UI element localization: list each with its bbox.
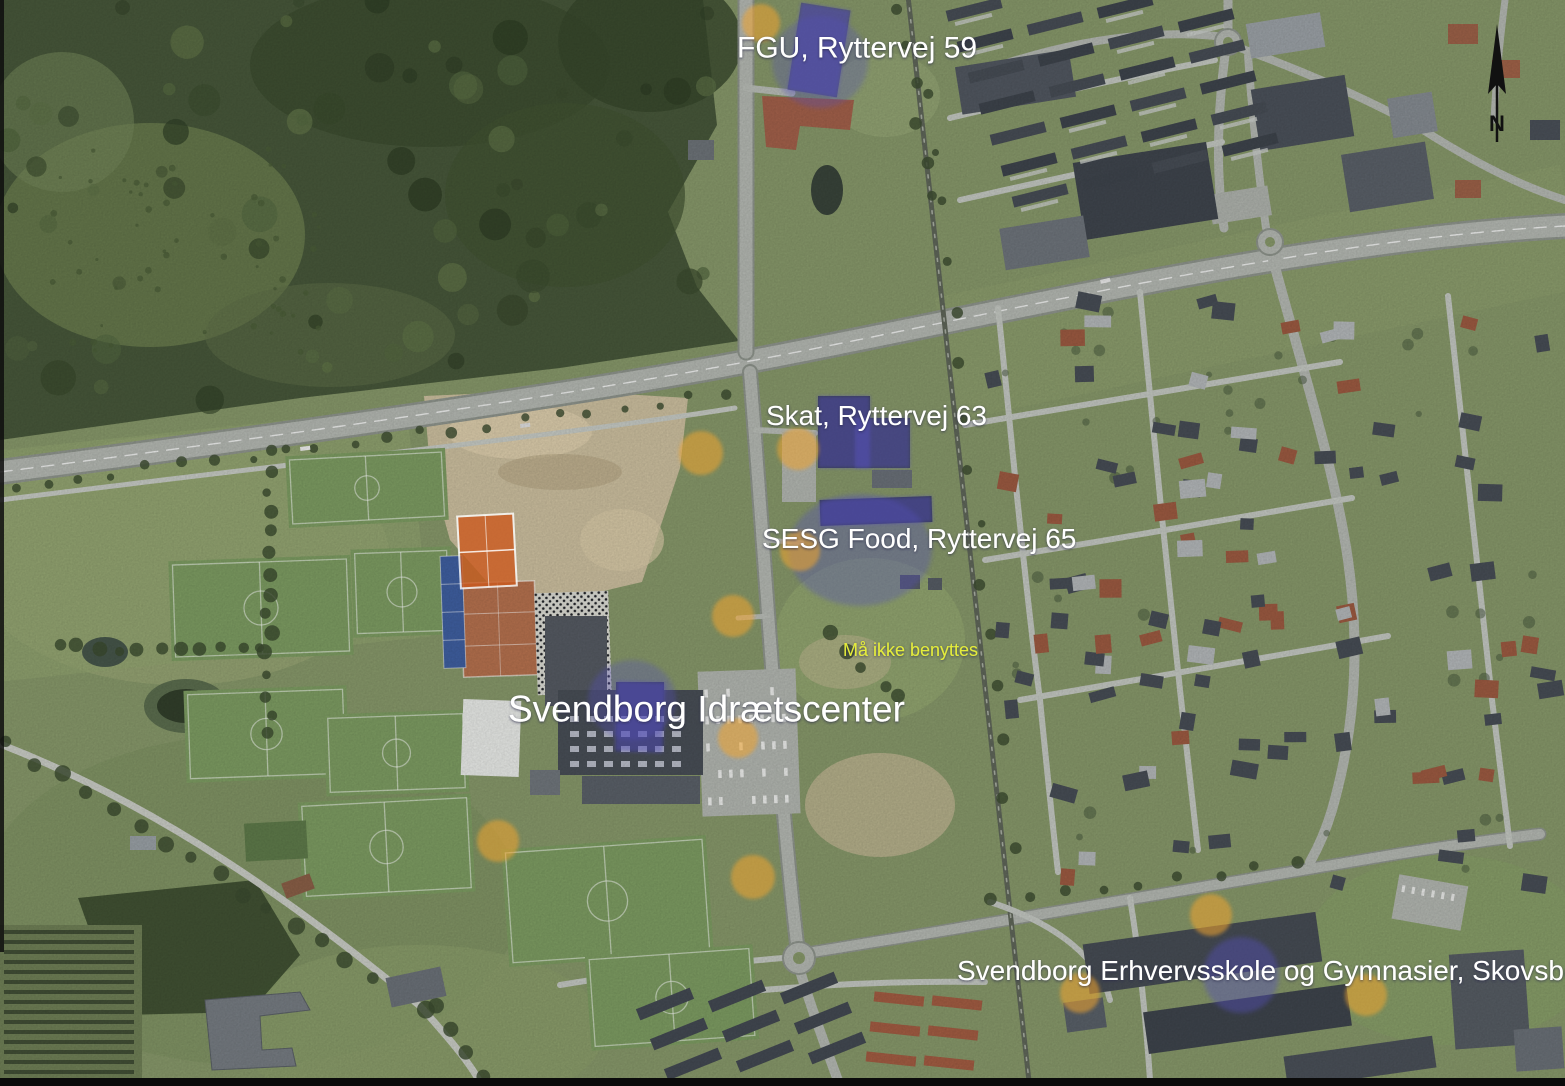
map-label-erhvervsskole: Svendborg Erhvervsskole og Gymnasier, Sk… — [957, 955, 1565, 986]
north-arrow-letter: N — [1489, 111, 1505, 136]
highlight-circle — [777, 428, 819, 470]
highlight-circle — [712, 595, 754, 637]
satellite-basemap: FGU, Ryttervej 59Skat, Ryttervej 63SESG … — [0, 0, 1565, 1086]
map-label-skat: Skat, Ryttervej 63 — [766, 400, 987, 431]
annotated-aerial-map: FGU, Ryttervej 59Skat, Ryttervej 63SESG … — [0, 0, 1565, 1086]
court-highlight-layer — [457, 514, 517, 589]
highlight-circle — [1190, 894, 1232, 936]
map-label-sesg-food: SESG Food, Ryttervej 65 — [762, 523, 1076, 554]
highlight-circle — [731, 855, 775, 899]
map-label-fgu: FGU, Ryttervej 59 — [737, 32, 977, 65]
left-black-edge — [0, 0, 4, 952]
map-label-idraetscenter: Svendborg Idrætscenter — [508, 688, 905, 729]
highlight-circle — [477, 820, 519, 862]
map-label-maa-ikke-benyttes: Må ikke benyttes — [843, 640, 978, 660]
bottom-black-bar — [0, 1078, 1565, 1086]
highlight-circle — [679, 431, 723, 475]
court-highlight — [457, 514, 517, 589]
